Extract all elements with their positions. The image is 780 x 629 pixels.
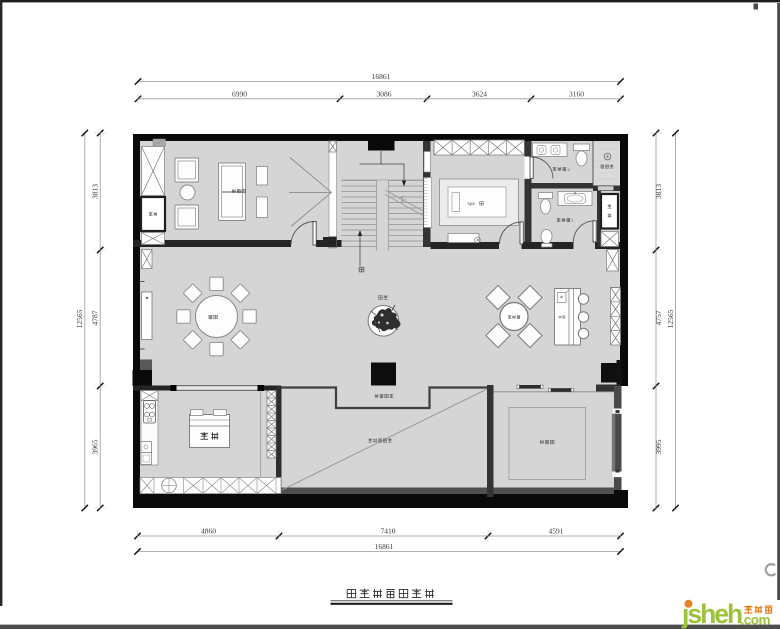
svg-text:7410: 7410 [381,527,396,536]
svg-text:4757: 4757 [654,310,663,325]
svg-text:4591: 4591 [549,527,564,536]
svg-text:3160: 3160 [569,89,584,98]
svg-text:3086: 3086 [377,89,392,98]
svg-text:6990: 6990 [232,89,247,98]
svg-text:4860: 4860 [201,527,216,536]
svg-text:.com: .com [741,613,771,628]
svg-text:3813: 3813 [91,184,100,199]
svg-text:16861: 16861 [372,72,391,81]
svg-text:12565: 12565 [666,309,675,328]
svg-text:3813: 3813 [654,184,663,199]
svg-text:3965: 3965 [91,439,100,454]
svg-text:spa: spa [467,201,475,206]
svg-text:12565: 12565 [75,309,84,328]
svg-text:3995: 3995 [654,439,663,454]
svg-text:4787: 4787 [91,310,100,325]
svg-text:16861: 16861 [375,542,394,551]
svg-text:3624: 3624 [472,89,487,98]
